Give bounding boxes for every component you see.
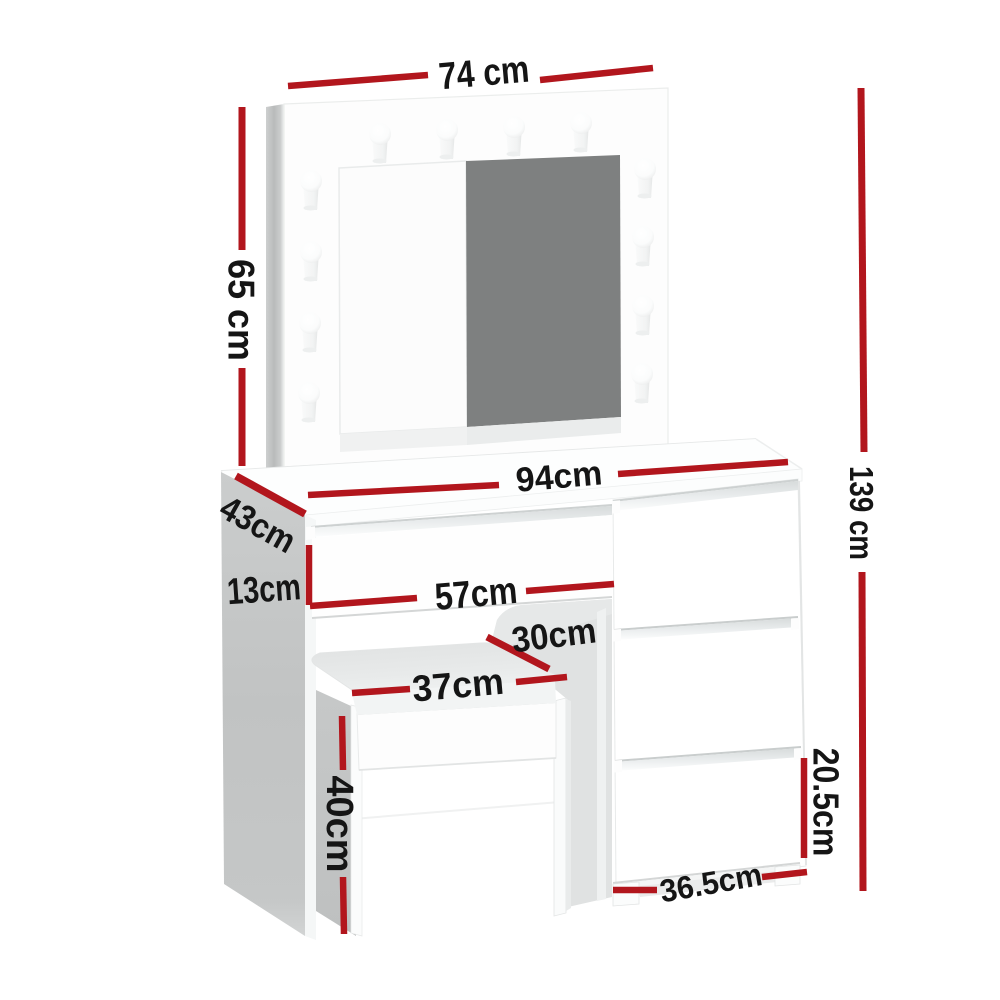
svg-text:13cm: 13cm [226,567,302,613]
svg-text:57cm: 57cm [433,569,519,618]
svg-text:94cm: 94cm [514,454,603,500]
svg-text:139 cm: 139 cm [843,466,880,560]
svg-text:37cm: 37cm [410,660,505,709]
svg-text:20.5cm: 20.5cm [805,748,845,857]
svg-text:65 cm: 65 cm [220,259,262,361]
svg-text:40cm: 40cm [318,775,360,872]
svg-text:74 cm: 74 cm [437,48,531,98]
